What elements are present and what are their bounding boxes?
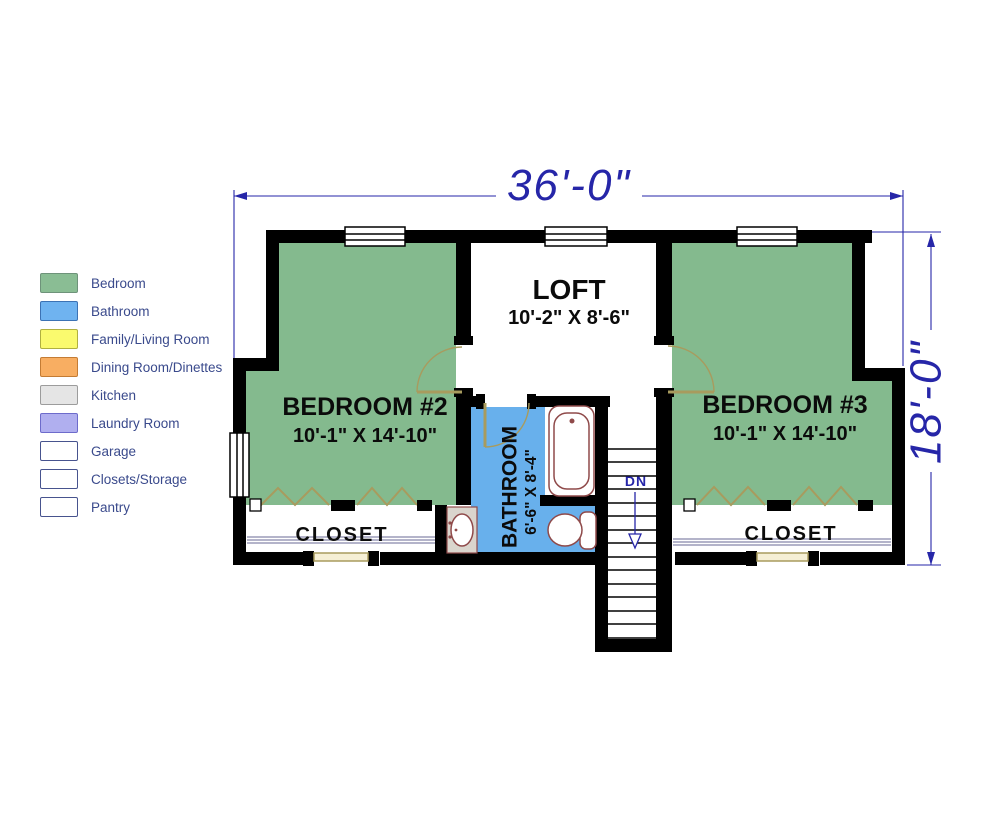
- doorpost: [303, 551, 314, 566]
- dimension-arrow-up: [927, 234, 935, 247]
- wall-left-lower-a: [233, 358, 246, 435]
- bathroom-name: BATHROOM: [499, 426, 522, 548]
- sink-basin: [451, 514, 473, 546]
- bedroom3-size: 10'-1" X 14'-10": [713, 423, 857, 445]
- doorpost: [746, 551, 757, 566]
- window-top-right: [737, 227, 797, 246]
- wall-bottom-b: [380, 552, 595, 565]
- dimension-arrow-down: [927, 552, 935, 565]
- wall-stair-left: [595, 396, 608, 652]
- bedroom2-name: BEDROOM #2: [282, 393, 447, 421]
- bedroom3-name: BEDROOM #3: [702, 391, 867, 419]
- bifold-post: [417, 500, 432, 511]
- bedroom2-size: 10'-1" X 14'-10": [293, 425, 437, 447]
- wall-bottom-a: [233, 552, 305, 565]
- bathtub-inner: [554, 413, 589, 489]
- stairs-dn-label: DN: [625, 473, 647, 489]
- closet-left-label: CLOSET: [295, 524, 388, 546]
- bifold-post: [250, 499, 261, 511]
- wall-stair-bottom: [595, 639, 672, 652]
- closet-right-label: CLOSET: [744, 523, 837, 545]
- wall-bottom-c: [675, 552, 748, 565]
- bifold-post: [684, 499, 695, 511]
- bifold-post: [767, 500, 791, 511]
- wall-bath-top-a: [458, 396, 476, 407]
- bathtub-faucet: [570, 419, 575, 424]
- bifold-post: [331, 500, 355, 511]
- sink-drain: [455, 529, 458, 532]
- dimension-arrow-left: [234, 192, 247, 200]
- wall-right-upper: [852, 230, 865, 381]
- width-dimension-label: 36'-0": [507, 161, 631, 210]
- wall-bedroom3-left-top: [656, 230, 672, 336]
- loft-name: LOFT: [532, 274, 605, 305]
- bifold-post: [858, 500, 873, 511]
- doorpost: [368, 551, 379, 566]
- sink-faucet-b: [448, 535, 451, 538]
- vanity-sink: [447, 507, 477, 553]
- toilet-bowl: [548, 514, 582, 546]
- wall-left-upper: [266, 230, 279, 371]
- window-left: [230, 433, 249, 497]
- wall-stair-right: [656, 397, 672, 652]
- wall-closet-vanity: [435, 505, 447, 552]
- toilet: [548, 512, 596, 549]
- loft-size: 10'-2" X 8'-6": [508, 307, 630, 329]
- floor-plan-page: Bedroom Bathroom Family/Living Room Dini…: [0, 0, 987, 838]
- dimension-arrow-right: [890, 192, 903, 200]
- doorpost: [654, 336, 674, 345]
- window-top-middle: [545, 227, 607, 246]
- height-dimension-label: 18'-0": [902, 340, 951, 464]
- sink-faucet-a: [448, 521, 451, 524]
- doorpost: [808, 551, 819, 566]
- bathroom-size: 6'-6" X 8'-4": [523, 449, 540, 535]
- wall-bedroom2-right-top: [456, 243, 471, 336]
- doorpost: [454, 336, 473, 345]
- window-top-left: [345, 227, 405, 246]
- stair-direction: DN: [625, 473, 647, 548]
- window-bottom-left: [314, 553, 368, 561]
- floor-plan-drawing: DN BEDROOM #2: [0, 0, 987, 838]
- wall-bedroom2-right-bottom: [456, 397, 471, 505]
- stairs-down-arrow-head: [629, 534, 641, 548]
- window-bottom-right: [757, 553, 808, 561]
- bathtub: [549, 406, 594, 496]
